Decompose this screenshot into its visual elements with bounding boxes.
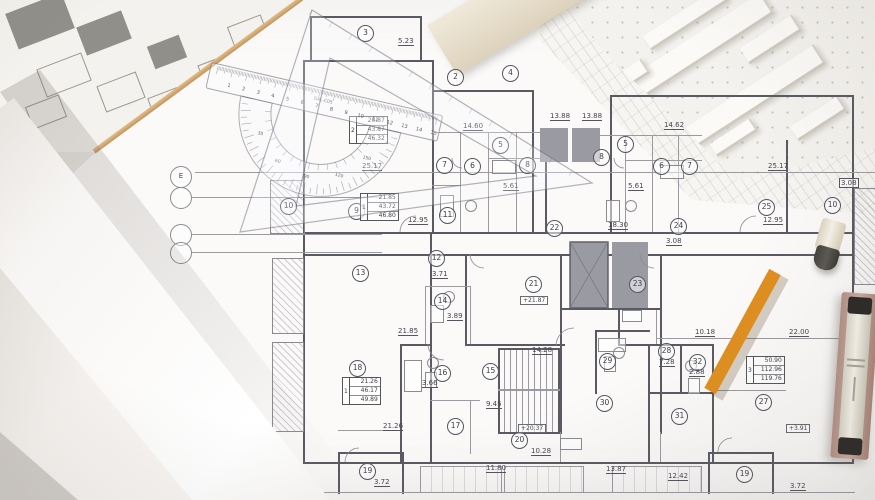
- lead-refill-tube: [838, 296, 873, 455]
- door-arc: [400, 216, 416, 232]
- tube-cap-bottom: [838, 437, 863, 456]
- door-arc: [556, 328, 574, 346]
- tube-label-line: [847, 364, 865, 367]
- door-arc: [452, 158, 462, 168]
- tube-label-line: [847, 358, 865, 361]
- door-arc: [640, 254, 654, 268]
- pencil: [710, 272, 782, 397]
- door-arc: [740, 216, 756, 232]
- pencil-body: [710, 272, 775, 391]
- door-arc: [470, 254, 484, 268]
- tube-cap-top: [847, 296, 872, 315]
- door-arc: [345, 448, 359, 462]
- door-arc: [428, 344, 444, 360]
- tube-label-mark: [852, 377, 856, 401]
- door-arc: [614, 158, 624, 168]
- pencil-shadow: [716, 276, 782, 397]
- architect-desk-photo: E324576885679101122242510121323211418161…: [0, 0, 875, 500]
- door-arc: [718, 438, 732, 452]
